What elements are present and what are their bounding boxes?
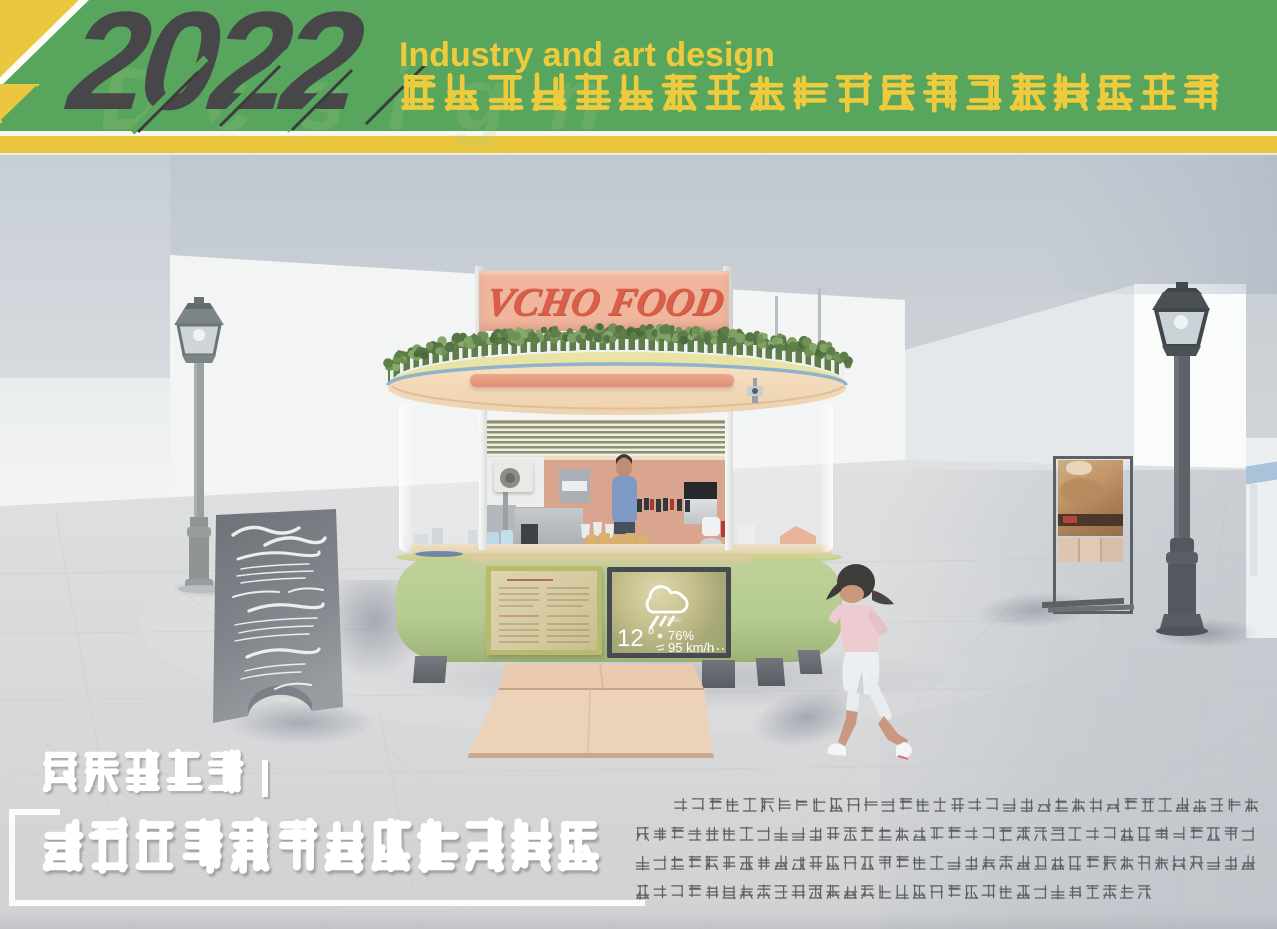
svg-text:12: 12	[617, 625, 644, 652]
svg-text:o: o	[648, 625, 654, 637]
svg-text:Rain: Rain	[667, 617, 681, 624]
svg-text:95 km/h: 95 km/h	[668, 640, 714, 653]
